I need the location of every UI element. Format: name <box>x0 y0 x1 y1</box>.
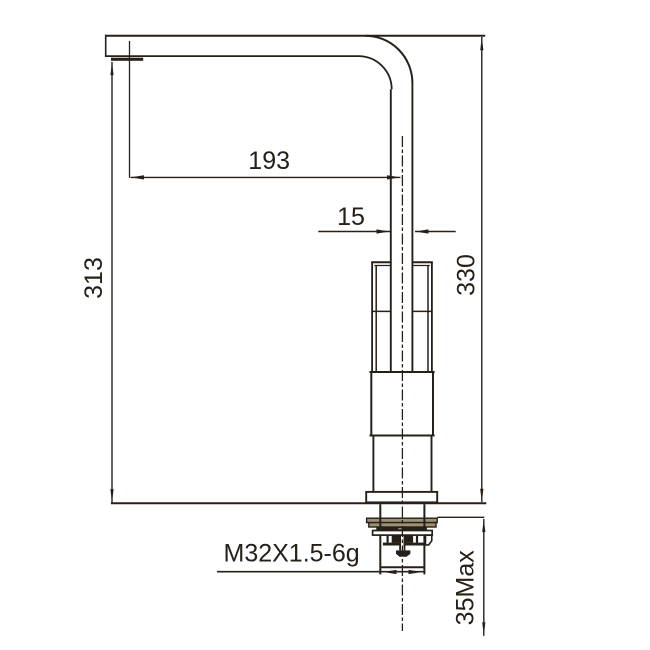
svg-text:M32X1.5-6g: M32X1.5-6g <box>224 540 360 568</box>
svg-text:15: 15 <box>337 203 365 231</box>
svg-text:35Max: 35Max <box>452 550 480 626</box>
svg-text:330: 330 <box>453 254 481 296</box>
svg-text:313: 313 <box>80 257 108 299</box>
svg-text:193: 193 <box>248 147 290 175</box>
